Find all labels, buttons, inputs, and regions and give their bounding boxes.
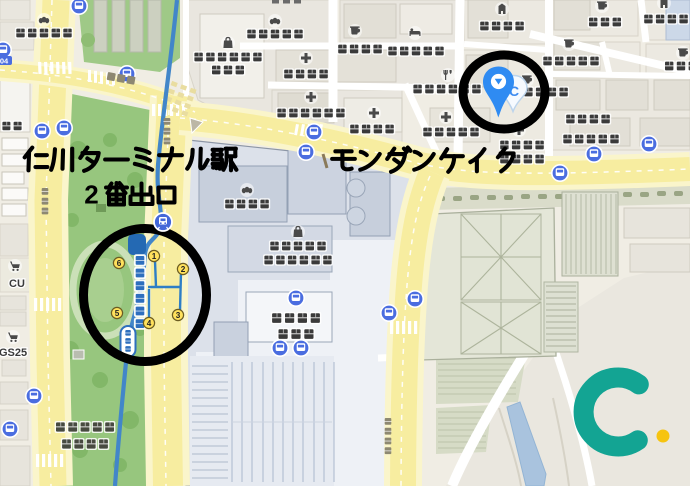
svg-text:CU: CU	[9, 278, 25, 290]
svg-text:GS25: GS25	[0, 347, 27, 359]
svg-text:6: 6	[117, 259, 122, 268]
svg-text:3: 3	[176, 311, 181, 320]
svg-text:2: 2	[181, 265, 186, 274]
svg-text:5: 5	[115, 309, 120, 318]
svg-text:4: 4	[147, 319, 152, 328]
svg-text:04: 04	[0, 57, 9, 66]
svg-text:1: 1	[152, 252, 157, 261]
svg-text:2: 2	[84, 180, 98, 210]
